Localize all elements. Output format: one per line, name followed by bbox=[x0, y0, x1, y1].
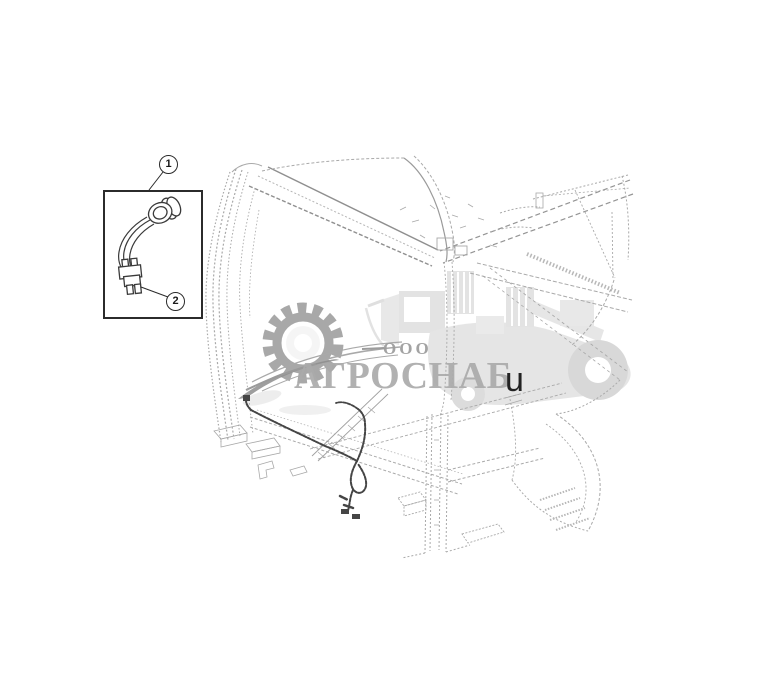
watermark-company-name: АГРОСНАБ bbox=[294, 355, 512, 397]
floor-structure bbox=[214, 383, 566, 543]
parts-diagram-page: ООО АГРОСНАБ 1 2 u bbox=[0, 0, 781, 681]
item-number-1: 1 bbox=[159, 155, 178, 174]
roof-detail-ticks bbox=[400, 196, 497, 247]
stray-character: u bbox=[505, 363, 524, 397]
callout-box bbox=[103, 190, 203, 319]
item-number-2: 2 bbox=[166, 292, 185, 311]
diagram-scene: ООО АГРОСНАБ bbox=[0, 0, 781, 681]
